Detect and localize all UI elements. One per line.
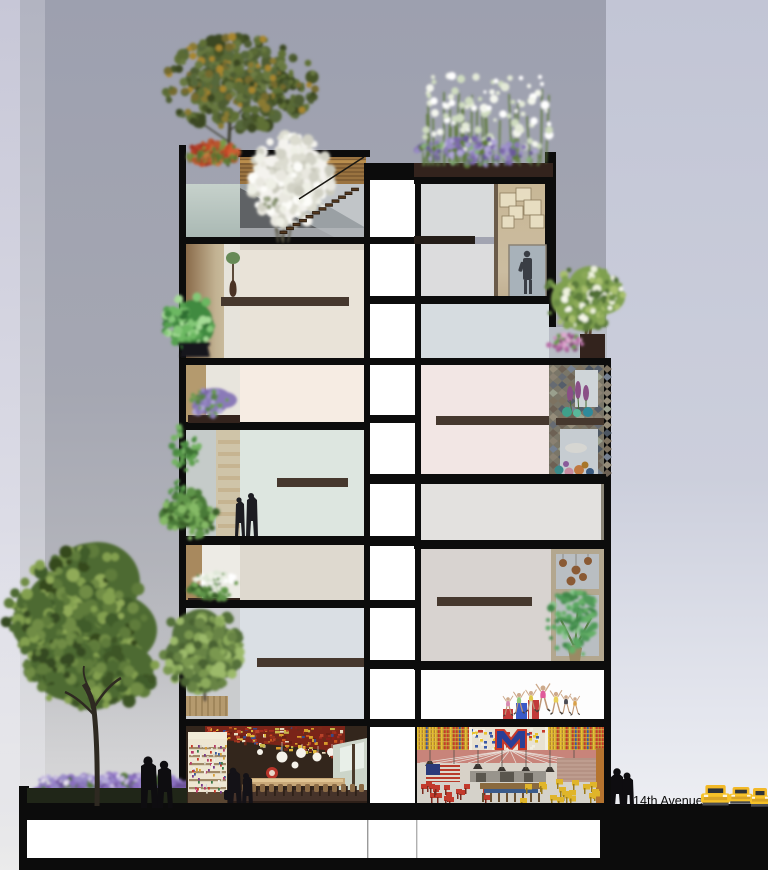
svg-text:14th Avenue: 14th Avenue	[633, 794, 703, 808]
